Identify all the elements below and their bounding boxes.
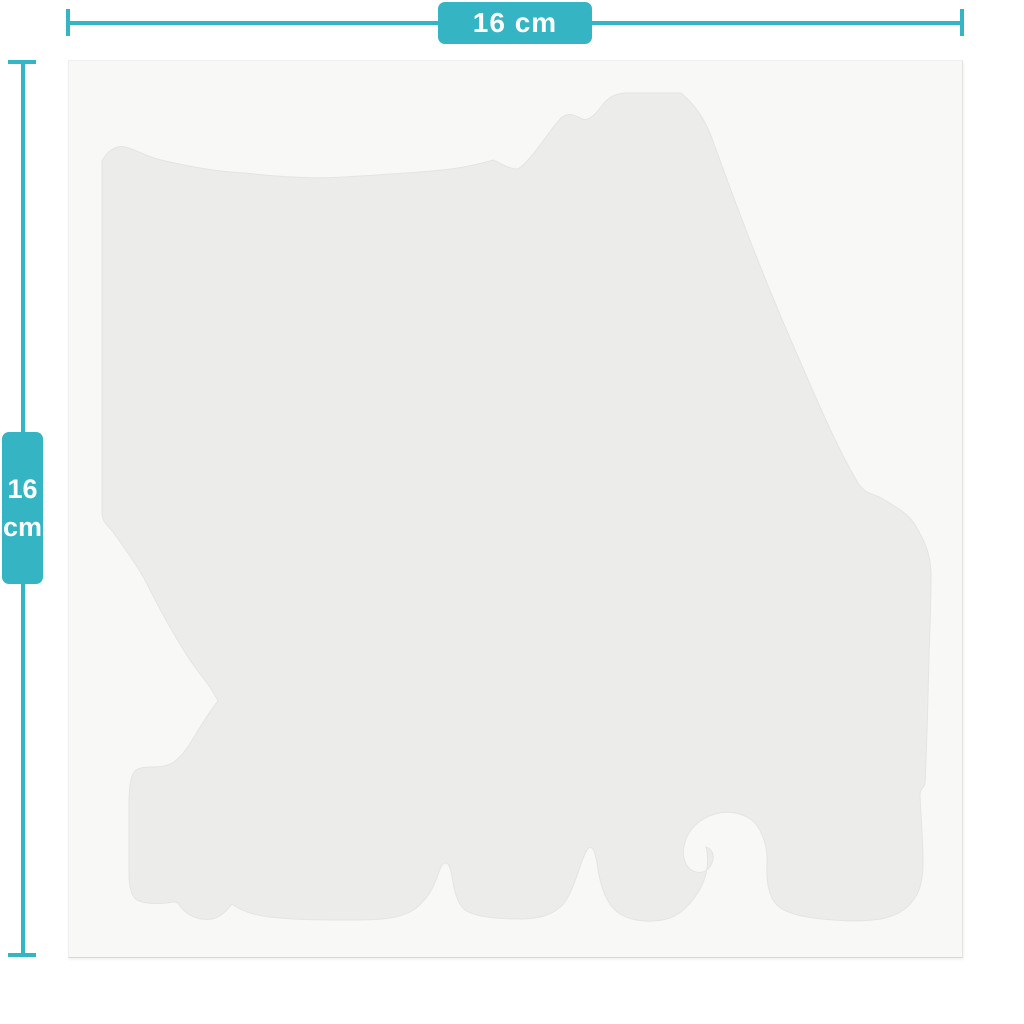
height-badge: 16 cm — [2, 432, 43, 584]
height-value-label: 16 — [7, 470, 37, 508]
height-unit-label: cm — [3, 508, 42, 546]
sticker-shape-svg — [69, 61, 964, 959]
width-tick-right — [960, 9, 964, 36]
height-tick-top — [8, 60, 36, 64]
width-badge: 16 cm — [438, 2, 592, 44]
sticker-shape — [102, 93, 931, 921]
product-size-mockup: 16 cm 16 cm — [0, 0, 1024, 1024]
width-tick-left — [66, 9, 70, 36]
width-label: 16 cm — [473, 7, 557, 39]
product-canvas — [68, 60, 963, 958]
height-tick-bottom — [8, 953, 36, 957]
